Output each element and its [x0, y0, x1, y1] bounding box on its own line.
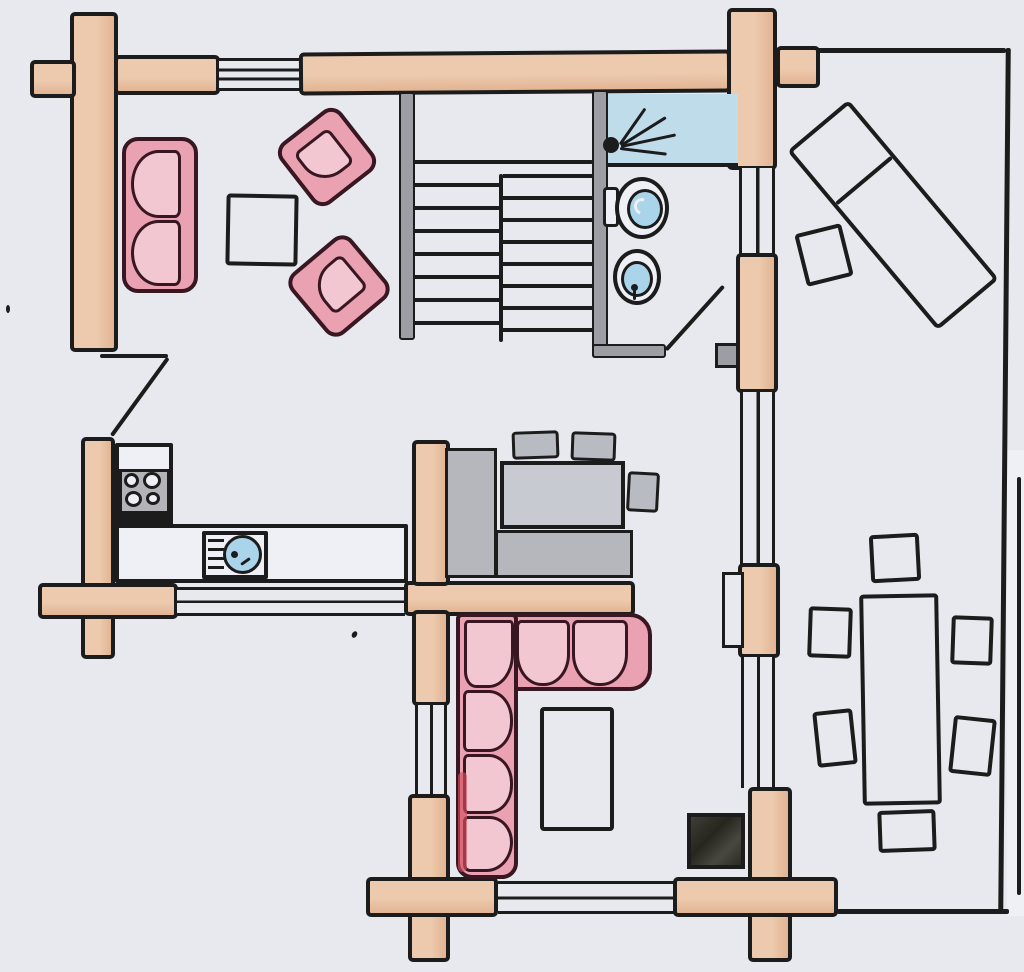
terrace-dining-table: [859, 593, 942, 805]
wall-partition-lower-cross: [748, 787, 792, 962]
stove-burner-2: [143, 472, 161, 489]
living-coffee-table: [225, 193, 298, 266]
wall-south-arm-west: [366, 877, 498, 917]
terrace-line-outer-edge: [1017, 477, 1021, 895]
nook-table: [500, 461, 625, 529]
window-kitchen-south: [177, 587, 405, 616]
pen-speck-1: [351, 630, 359, 639]
corner-sofa-cushion-v2: [463, 754, 513, 814]
sun-lounger: [787, 100, 999, 331]
floor-plan: [0, 0, 1024, 972]
bathroom-wall-bottom: [592, 344, 666, 358]
terrace-chair-top: [869, 533, 921, 584]
pen-speck-2: [6, 305, 10, 313]
wall-south-arm-east: [673, 877, 838, 917]
window-top-wall: [219, 58, 301, 91]
window-central-wall: [415, 705, 447, 795]
washbasin-stem: [633, 290, 636, 300]
partition-cabinet: [715, 343, 739, 368]
stair-center-divider: [499, 174, 503, 342]
terrace-side-table: [794, 223, 854, 287]
wall-left-upper-arm: [30, 60, 76, 98]
wall-kitchen-south-arm: [38, 583, 178, 619]
terrace-line-bottom: [837, 909, 1009, 914]
nook-stool-3: [626, 471, 660, 513]
wall-top-main: [299, 49, 731, 95]
wall-left-upper: [70, 12, 118, 352]
stair-stringer-left: [399, 92, 415, 340]
sun-lounger-backrest-line: [835, 156, 893, 205]
family-coffee-table: [540, 707, 614, 831]
wall-top-east-stub: [776, 46, 820, 88]
corner-sofa-cushion-v1: [463, 690, 513, 752]
wall-central-mid: [412, 610, 450, 706]
entrance-door-leaf: [100, 354, 168, 358]
window-partition-3: [741, 657, 775, 788]
living-armchair-2: [283, 230, 396, 343]
nook-stool-2: [571, 431, 617, 462]
living-armchair-2-seat: [307, 253, 369, 315]
fireplace-stove: [687, 813, 745, 869]
living-sofa-cushion-2: [131, 220, 181, 286]
window-family-south: [498, 881, 674, 914]
kitchen-sink-drainer: [208, 539, 224, 572]
wall-partition-mid2: [738, 563, 780, 658]
kitchen-sink-drain: [231, 551, 238, 558]
terrace-chair-left-1: [807, 606, 853, 659]
corner-sofa-red-shade: [458, 772, 467, 872]
terrace-edge-strip: [1007, 450, 1024, 916]
terrace-chair-bottom: [877, 809, 936, 853]
corner-sofa-cushion-corner: [464, 620, 514, 688]
stove-burner-3: [125, 491, 142, 507]
corner-sofa-cushion-h2: [572, 620, 628, 686]
wall-partition-mid1: [736, 253, 778, 393]
window-partition-1: [739, 168, 775, 254]
terrace-chair-right-1: [950, 615, 994, 665]
living-armchair-1-seat: [293, 127, 355, 189]
stair-flight-right: [503, 156, 592, 346]
stove-burner-1: [124, 473, 139, 488]
kitchen-stove: [119, 469, 170, 514]
nook-bench-horizontal: [495, 530, 633, 578]
entrance-door-swing: [110, 357, 170, 437]
nook-stool-1: [512, 430, 560, 460]
kitchen-stove-front: [119, 511, 170, 524]
shower-head-icon: [603, 137, 619, 153]
living-sofa-cushion-1: [131, 150, 181, 218]
wall-top-west: [114, 55, 220, 95]
bathroom-door-swing: [665, 285, 726, 352]
terrace-chair-left-2: [812, 708, 858, 768]
corner-sofa-cushion-h1: [516, 620, 570, 686]
wall-kitchen-left: [81, 437, 115, 659]
stair-flight-left: [415, 164, 499, 342]
nook-bench-vertical: [445, 448, 497, 578]
partition-radiator: [722, 572, 744, 648]
stove-burner-4: [146, 492, 160, 505]
window-partition-2: [740, 392, 775, 564]
terrace-chair-right-2: [948, 715, 997, 777]
washbasin-bowl: [621, 261, 653, 297]
terrace-line-top: [816, 48, 1006, 53]
kitchen-sink-basin: [223, 535, 262, 574]
